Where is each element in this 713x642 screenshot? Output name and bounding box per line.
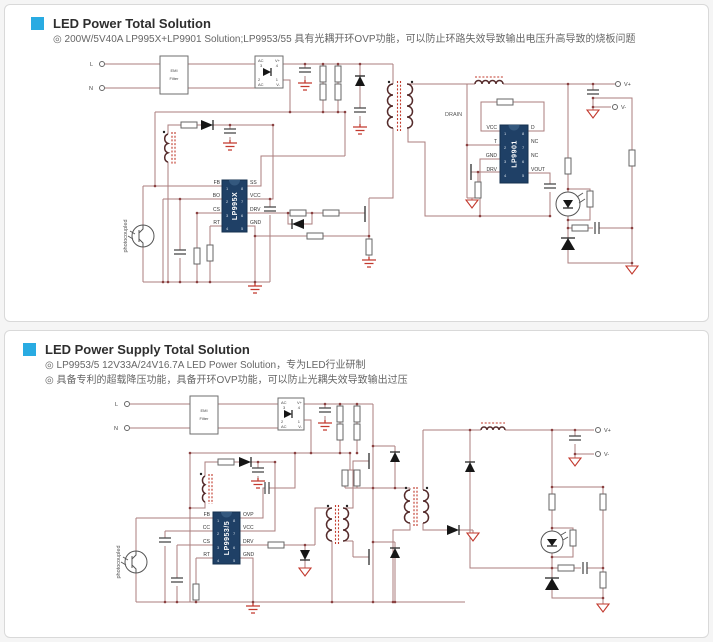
schematic-flyback: EMI Filter AC 3 V+ 4 2 AC 1 V- L N: [5, 50, 709, 314]
pin-label: FB: [204, 512, 211, 518]
pin-label: SS: [250, 180, 257, 186]
junction-dots: [164, 403, 605, 604]
pin-label: GND: [250, 220, 262, 226]
terminal-l: L: [90, 62, 93, 68]
main-transformer: [405, 487, 429, 526]
terminal-n: N: [114, 426, 118, 432]
main-transformer: [388, 80, 414, 130]
panel-bullet: ◎ 200W/5V40A LP995X+LP9901 Solution;LP99…: [53, 33, 698, 47]
emi-filter: EMI Filter: [190, 396, 218, 434]
terminal-n: N: [89, 86, 93, 92]
panel-title: LED Power Total Solution: [53, 16, 211, 31]
pin-label: CS: [203, 539, 211, 545]
photocoupler-label: photocoupled: [116, 545, 122, 578]
pin-label: VCC: [250, 193, 261, 199]
pin-label: VCC: [486, 125, 497, 131]
terminal-vplus: V+: [604, 428, 611, 434]
pin-label: NC: [531, 153, 539, 159]
pin-label: NC: [531, 139, 539, 145]
bridge-rectifier: AC 3 V+ 4 2 AC 1 V-: [255, 56, 283, 88]
bridge-rectifier: AC 3 V+ 4 2 AC 1 V-: [278, 398, 304, 430]
schematic-llc: EMI Filter AC 3 V+ 4 2 AC 1 V- L N: [5, 390, 709, 622]
panel-title: LED Power Supply Total Solution: [45, 342, 250, 357]
terminal-vminus: V-: [621, 105, 626, 111]
pin-label: VOUT: [531, 167, 545, 173]
pin-label: RT: [203, 552, 210, 558]
pin-label: CC: [203, 525, 211, 531]
panel-header: LED Power Total Solution: [31, 16, 708, 31]
gate-transformer: [327, 505, 349, 544]
ic-name: LP9901: [512, 140, 519, 168]
accent-square: [23, 343, 36, 356]
ic-lp995x: LP995X FB BO CS RT SS VCC DRV GND 1 2 3 …: [213, 180, 262, 232]
pin-label: OVP: [243, 512, 254, 518]
output-inductor: [481, 423, 505, 430]
terminal-l: L: [115, 402, 118, 408]
panel-led-power-total: LED Power Total Solution ◎ 200W/5V40A LP…: [4, 4, 709, 322]
aux-transformer: [163, 130, 175, 163]
emi-label-2: Filter: [200, 416, 210, 421]
bridge-pin: V-: [298, 424, 302, 429]
input-terminals: L N: [114, 402, 129, 433]
emi-filter: EMI Filter: [160, 56, 188, 94]
pin-label: DRV: [250, 207, 261, 213]
output-inductor: [475, 77, 503, 84]
output-terminals: V+ V-: [596, 428, 611, 459]
optocoupler-led: [541, 531, 568, 553]
drain-label: DRAIN: [445, 112, 462, 118]
pin-label: GND: [243, 552, 255, 558]
accent-square: [31, 17, 44, 30]
panel-bullet: ◎ 具备专利的超载降压功能，具备开环OVP功能，可以防止光耦失效导致输出过压: [45, 374, 698, 388]
panel-header: LED Power Supply Total Solution: [23, 342, 708, 357]
ic-lp9953: LP9953/5 FB CC CS RT OVP VCC DRV GND 1 2…: [203, 512, 255, 564]
pin-label: CS: [213, 207, 221, 213]
shunt-regulator: [545, 578, 559, 590]
aux-transformer: [200, 473, 212, 504]
panel-bullet: ◎ LP9953/5 12V33A/24V16.7A LED Power Sol…: [45, 359, 698, 373]
pin-label: BO: [213, 193, 220, 199]
pin-label: DRV: [487, 167, 498, 173]
shunt-regulator: [561, 238, 575, 250]
emi-label-1: EMI: [170, 68, 177, 73]
pin-label: T: [494, 139, 497, 145]
bridge-pin: AC: [281, 424, 287, 429]
ic-name: LP995X: [232, 191, 239, 219]
pin-label: FB: [214, 180, 221, 186]
photocoupler-transistor: photocoupled: [116, 545, 147, 578]
passive-components: [159, 406, 609, 613]
bridge-pin: V-: [276, 82, 280, 87]
terminal-vminus: V-: [604, 452, 609, 458]
emi-label-2: Filter: [170, 76, 180, 81]
terminal-vplus: V+: [624, 82, 631, 88]
ic-name: LP9953/5: [224, 521, 231, 555]
emi-label-1: EMI: [200, 408, 207, 413]
optocoupler-led: [556, 192, 585, 216]
photocoupler-transistor: photocoupled: [123, 219, 154, 252]
photocoupler-label: photocoupled: [123, 219, 129, 252]
pin-label: DRV: [243, 539, 254, 545]
pin-label: VCC: [243, 525, 254, 531]
pin-label: D: [531, 125, 535, 131]
bridge-pin: AC: [258, 82, 264, 87]
pin-label: RT: [213, 220, 220, 226]
ic-lp9901: LP9901 VCC T GND DRV D NC NC VOUT 1 2 3 …: [486, 125, 545, 183]
panel-led-power-supply: LED Power Supply Total Solution ◎ LP9953…: [4, 330, 709, 638]
input-terminals: L N: [89, 61, 104, 92]
output-terminals: V+ V-: [613, 81, 631, 111]
pin-label: GND: [486, 153, 498, 159]
